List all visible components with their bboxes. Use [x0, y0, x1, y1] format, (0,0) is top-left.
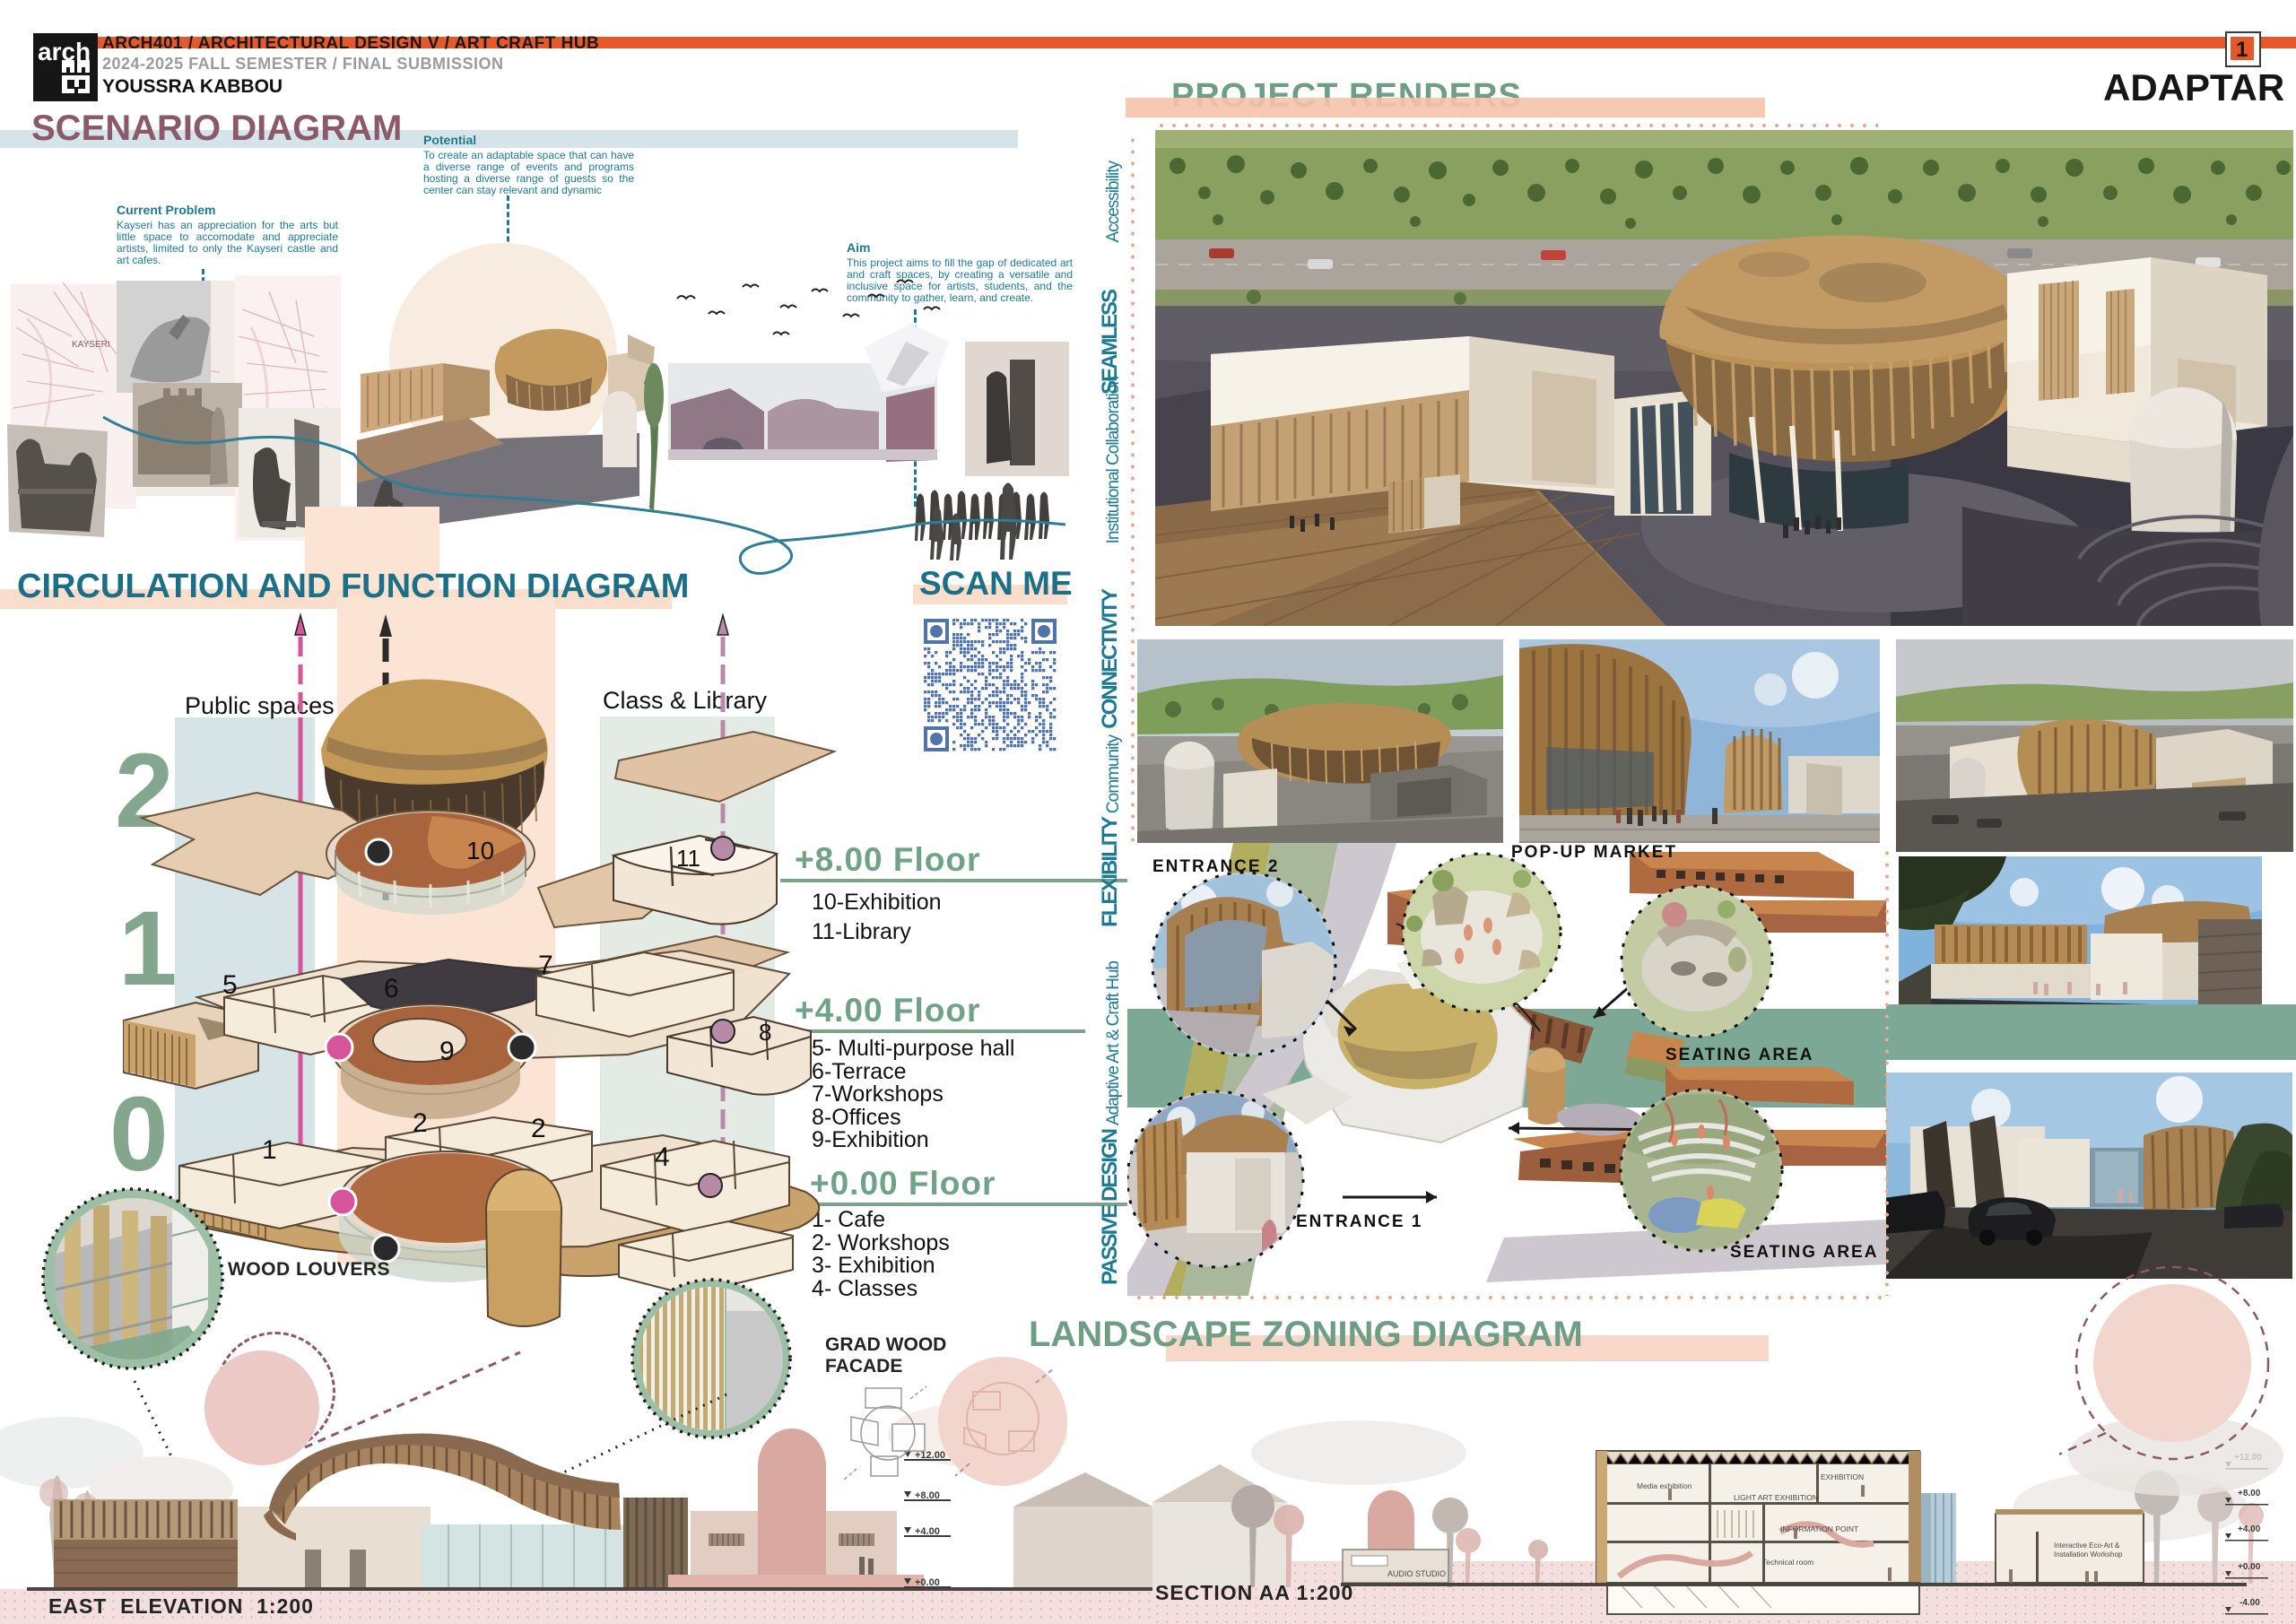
- svg-text:6: 6: [384, 974, 399, 1003]
- svg-text:LIGHT ART EXHIBITION: LIGHT ART EXHIBITION: [1734, 1493, 1818, 1502]
- svg-text:ENTRANCE 2: ENTRANCE 2: [1152, 857, 1279, 876]
- svg-text:-4.00: -4.00: [2239, 1598, 2260, 1608]
- svg-text:Media exhibition: Media exhibition: [1637, 1481, 1692, 1490]
- svg-text:1: 1: [262, 1135, 277, 1165]
- svg-text:+4.00: +4.00: [2238, 1524, 2261, 1534]
- svg-text:SEATING AREA: SEATING AREA: [1665, 1046, 1813, 1064]
- svg-text:2: 2: [531, 1114, 546, 1143]
- svg-text:4: 4: [655, 1142, 670, 1172]
- svg-text:SEATING AREA: SEATING AREA: [1730, 1243, 1878, 1262]
- svg-text:Interactive Eco-Art &: Interactive Eco-Art &: [2054, 1541, 2120, 1550]
- svg-text:10: 10: [466, 837, 494, 864]
- svg-text:ENTRANCE 1: ENTRANCE 1: [1296, 1212, 1422, 1231]
- svg-text:2: 2: [413, 1108, 428, 1138]
- svg-text:AUDIO STUDIO: AUDIO STUDIO: [1387, 1569, 1446, 1578]
- svg-text:INFORMATION POINT: INFORMATION POINT: [1780, 1524, 1858, 1533]
- svg-text:KAYSERI: KAYSERI: [72, 340, 110, 350]
- svg-text:9: 9: [439, 1037, 455, 1066]
- svg-text:POP-UP MARKET: POP-UP MARKET: [1511, 843, 1677, 862]
- svg-text:+0.00: +0.00: [2238, 1562, 2261, 1572]
- svg-text:5: 5: [222, 970, 238, 1000]
- svg-text:7: 7: [538, 951, 553, 980]
- svg-text:11: 11: [676, 845, 700, 872]
- svg-text:Technical room: Technical room: [1762, 1558, 1813, 1567]
- svg-text:EXHIBITION: EXHIBITION: [1821, 1472, 1864, 1481]
- svg-text:8: 8: [759, 1019, 771, 1046]
- svg-text:Installation Workshop: Installation Workshop: [2054, 1550, 2123, 1559]
